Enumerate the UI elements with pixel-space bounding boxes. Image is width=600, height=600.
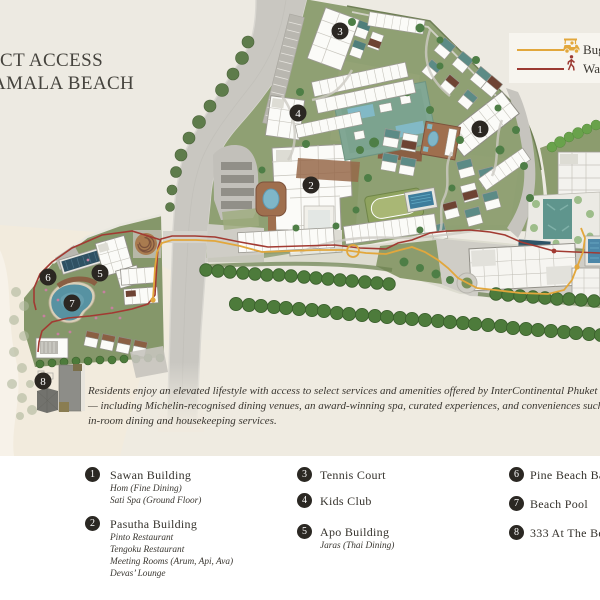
svg-text:6: 6	[45, 272, 51, 284]
svg-text:3: 3	[337, 26, 343, 38]
svg-text:1: 1	[477, 124, 483, 136]
svg-text:8: 8	[40, 376, 46, 388]
svg-text:7: 7	[69, 298, 75, 310]
svg-text:4: 4	[295, 108, 301, 120]
svg-text:2: 2	[308, 180, 314, 192]
svg-text:5: 5	[97, 268, 103, 280]
